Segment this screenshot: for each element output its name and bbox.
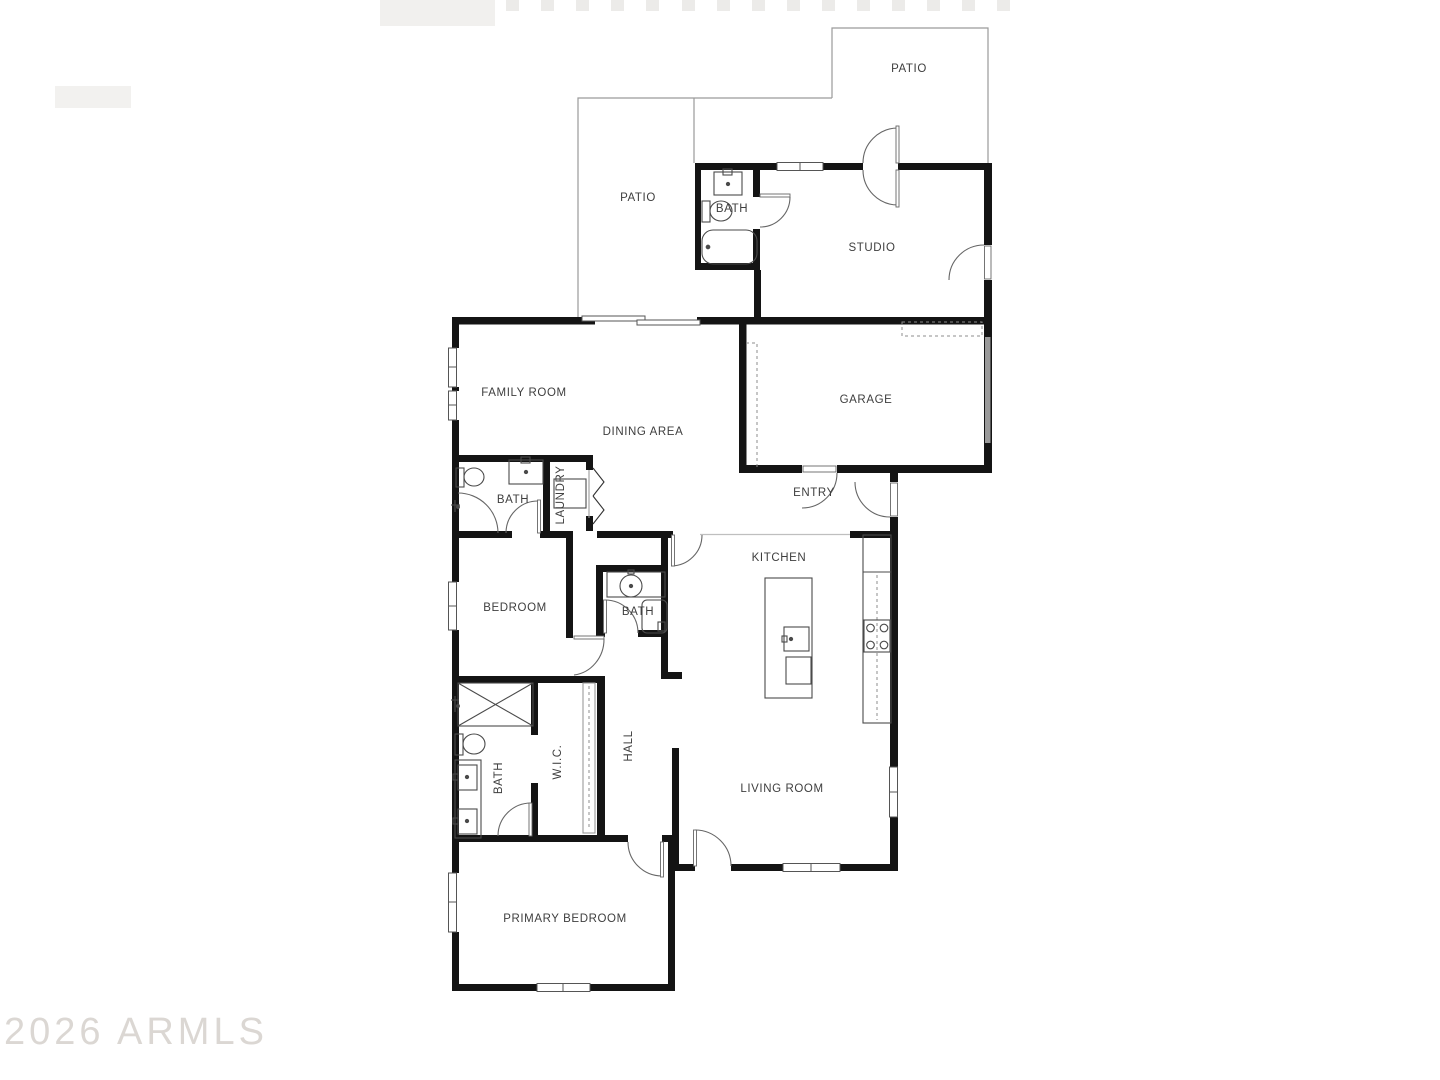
toilet [456,468,484,487]
door-panel [604,600,607,633]
door-panel [896,170,899,207]
window [449,348,457,387]
window [449,391,457,420]
label-wic: W.I.C. [552,745,564,780]
garage-door [985,337,991,443]
door-arc [760,197,790,227]
door-panel [896,126,899,163]
door-arcs-layer [458,128,984,876]
patio-left-outline [578,98,832,317]
sliding-door [582,316,700,325]
floor-plan-svg: PATIO PATIO BATH STUDIO FAMILY ROOM DINI… [0,0,1440,1080]
door-panel [985,246,992,279]
label-middle-bath: BATH [622,606,654,618]
door-arc [855,482,890,517]
door-panel [803,466,836,472]
door-arc [863,170,898,205]
label-bedroom: BEDROOM [483,602,547,614]
watermark: 2026 ARMLS [4,1011,268,1053]
bifold-door [593,496,604,524]
floor-plan: PATIO PATIO BATH STUDIO FAMILY ROOM DINI… [0,0,1440,1080]
door-arc [695,830,731,866]
label-primary-bath: BATH [493,762,505,794]
bathtub [702,230,757,264]
shower [451,683,533,726]
window [777,163,823,171]
label-primary-bedroom: PRIMARY BEDROOM [503,913,627,925]
window [783,864,840,872]
label-living-room: LIVING ROOM [740,783,823,795]
door-panel [538,500,541,533]
window [890,767,898,817]
door-arc [949,245,984,280]
label-garage: GARAGE [840,394,893,406]
label-patio-left: PATIO [620,192,656,204]
door-arc [863,128,898,163]
door-panel [672,535,675,566]
sink [607,570,665,597]
window [449,873,457,932]
toilet [455,734,485,755]
label-family-room: FAMILY ROOM [481,387,566,399]
label-studio: STUDIO [848,242,895,254]
window [449,582,457,630]
label-hall-bath: BATH [497,494,529,506]
label-studio-bath: BATH [716,203,748,215]
label-patio-top: PATIO [891,63,927,75]
scan-artifacts [55,0,1010,108]
door-panel [694,830,697,866]
label-dining-area: DINING AREA [603,426,684,438]
kitchen-island [765,578,812,698]
door-panel [661,842,664,877]
window [537,984,590,992]
walls-layer [452,163,992,991]
sink [714,169,742,195]
door-arc [574,639,604,675]
label-kitchen: KITCHEN [752,552,807,564]
label-hall: HALL [623,730,635,761]
door-arc [498,803,531,836]
label-laundry: LAUNDRY [555,466,567,525]
garage-dashed-line [746,343,757,467]
door-panel [574,636,604,639]
dashed-layer [589,322,982,830]
shower-door-arc [458,493,498,533]
label-entry: ENTRY [793,487,835,499]
door-arc [628,842,662,876]
door-panel [760,194,790,197]
patio-top-outline [832,28,988,163]
bifold-door [593,468,604,496]
door-arc [671,535,702,566]
door-panel [529,803,532,836]
door-panel [891,483,898,516]
